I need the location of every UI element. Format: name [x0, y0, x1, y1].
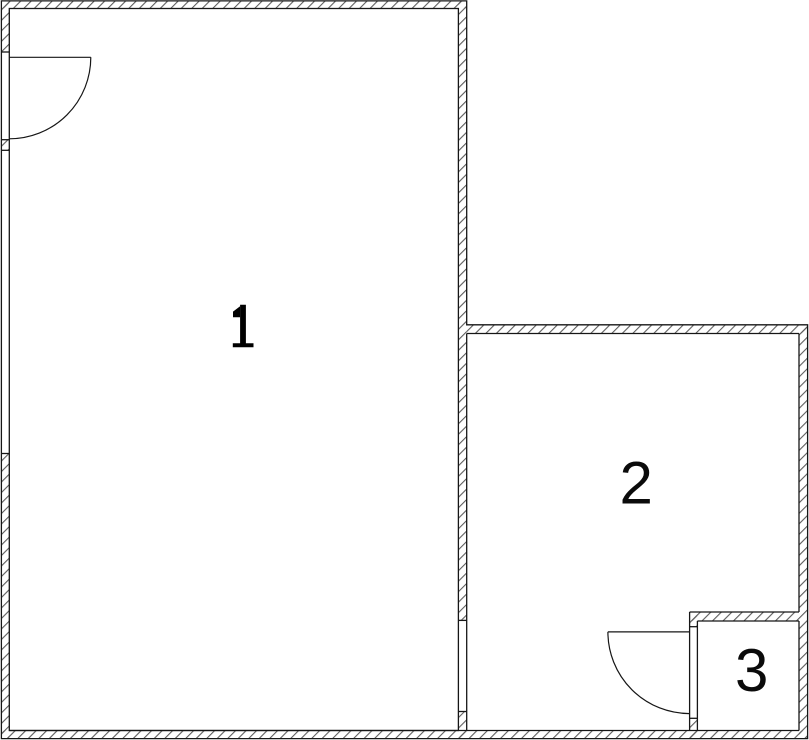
svg-text:3: 3 — [735, 637, 768, 704]
svg-text:2: 2 — [620, 449, 653, 516]
